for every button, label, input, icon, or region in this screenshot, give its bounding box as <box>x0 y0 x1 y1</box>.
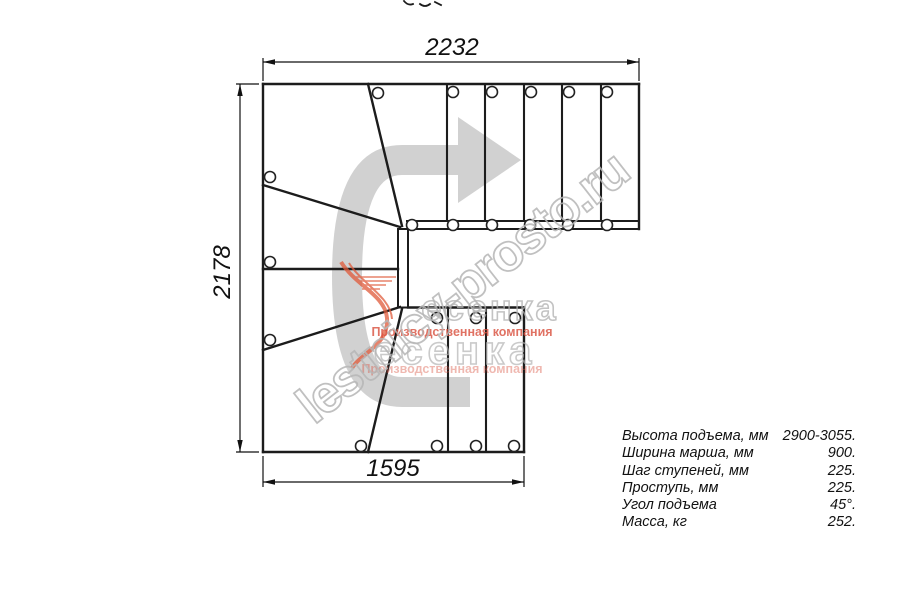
spec-label: Шаг ступеней, мм <box>622 463 749 480</box>
spec-value: 252. <box>828 514 856 531</box>
spec-label: Проступь, мм <box>622 480 718 497</box>
spec-row-angle: Угол подъема 45°. <box>622 497 856 514</box>
spec-row-tread: Проступь, мм 225. <box>622 480 856 497</box>
spec-value: 2900-3055. <box>783 428 856 445</box>
dimension-bottom-width: 1595 <box>366 455 420 482</box>
spec-value: 45°. <box>830 497 856 514</box>
spec-label: Ширина марша, мм <box>622 445 754 462</box>
spec-label: Высота подъема, мм <box>622 428 769 445</box>
spec-table: Высота подъема, мм 2900-3055. Ширина мар… <box>622 428 856 532</box>
spec-value: 225. <box>828 463 856 480</box>
spec-row-step-pitch: Шаг ступеней, мм 225. <box>622 463 856 480</box>
dimension-left-height: 2178 <box>209 245 236 300</box>
spec-value: 900. <box>828 445 856 462</box>
dimension-top-width: 2232 <box>424 34 478 61</box>
staircase-drawing-page: есенка Производственная компания есенка … <box>0 0 900 600</box>
spec-row-mass: Масса, кг 252. <box>622 514 856 531</box>
spec-row-march-width: Ширина марша, мм 900. <box>622 445 856 462</box>
spec-label: Угол подъема <box>622 497 717 514</box>
spec-value: 225. <box>828 480 856 497</box>
spec-row-height: Высота подъема, мм 2900-3055. <box>622 428 856 445</box>
spec-label: Масса, кг <box>622 514 687 531</box>
